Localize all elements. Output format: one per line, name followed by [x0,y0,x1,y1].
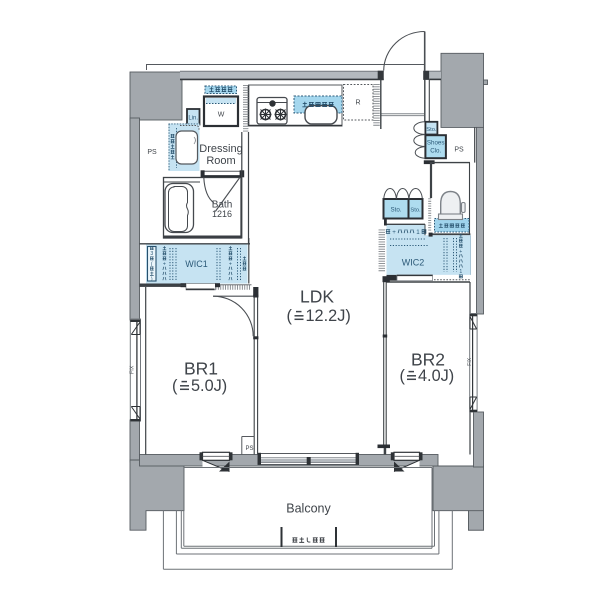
svg-text:PS: PS [147,149,157,156]
svg-text:(: ( [151,261,153,267]
svg-text:+: + [229,261,232,267]
svg-text:3: 3 [150,251,153,257]
svg-text:W: W [218,112,225,119]
svg-text:Shoes: Shoes [427,140,445,147]
svg-text:WIC1: WIC1 [185,259,208,269]
svg-text:BR1: BR1 [184,359,218,379]
svg-text:Balcony: Balcony [286,502,331,516]
svg-text:+: + [459,249,462,255]
svg-text:Room: Room [206,155,235,167]
svg-text:(: ( [172,377,178,395]
svg-text:1216: 1216 [212,209,232,219]
svg-text:(: ( [287,307,293,325]
svg-text:Sto.: Sto. [390,207,401,214]
svg-text:+: + [163,261,166,267]
svg-text:1: 1 [416,229,420,236]
svg-text:PS: PS [245,446,253,452]
svg-text:FIX: FIX [467,357,473,365]
svg-text:FIX: FIX [130,365,136,374]
svg-text:PS: PS [454,147,464,154]
svg-text:Sto.: Sto. [410,208,421,214]
svg-text:): ) [151,277,153,283]
svg-text:12.2J): 12.2J) [306,307,351,325]
svg-text:Sto.: Sto. [426,127,437,133]
svg-text:WIC2: WIC2 [402,258,425,268]
svg-text:1: 1 [459,269,462,275]
svg-text:Dressing: Dressing [199,143,242,155]
svg-text:4.0J): 4.0J) [418,367,454,385]
svg-text:R: R [355,100,360,107]
svg-text:LDK: LDK [300,287,334,307]
svg-text:Clo.: Clo. [430,148,441,155]
svg-text:5.0J): 5.0J) [191,377,227,395]
svg-text:(: ( [400,367,406,385]
svg-text:+: + [392,229,396,236]
svg-text:Lin.: Lin. [188,116,198,122]
